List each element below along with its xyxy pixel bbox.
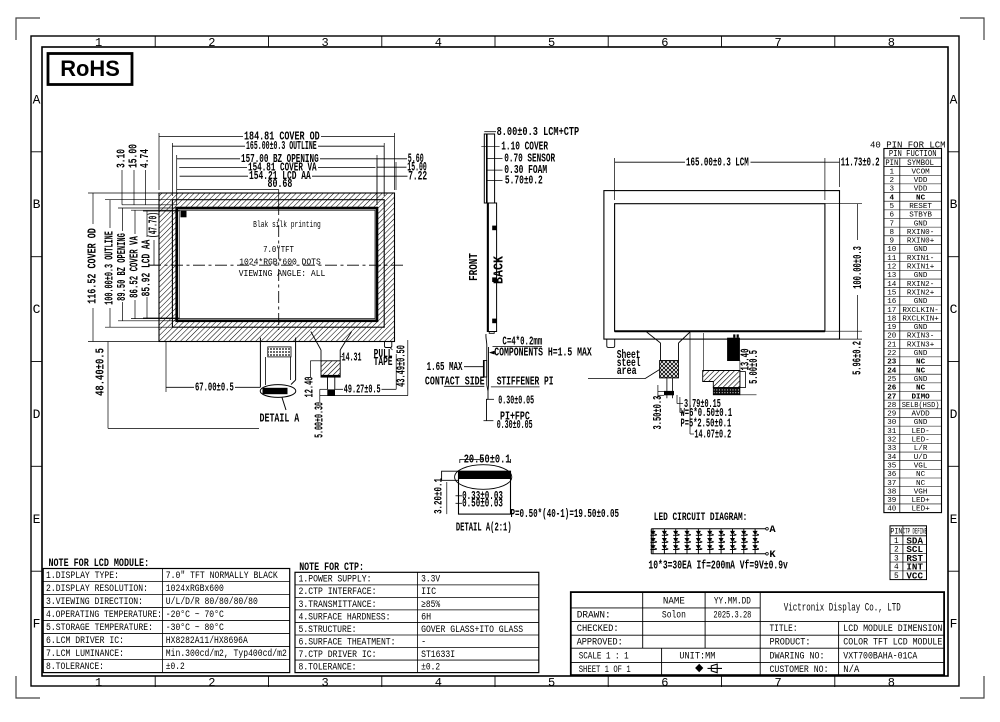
svg-text:5.STORAGE TEMPERATURE:: 5.STORAGE TEMPERATURE:	[46, 623, 153, 634]
svg-text:IIC: IIC	[421, 587, 436, 598]
svg-text:LED+: LED+	[911, 497, 930, 505]
svg-text:YY.MM.DD: YY.MM.DD	[714, 597, 751, 608]
svg-text:E: E	[950, 512, 958, 527]
svg-text:8.TOLERANCE:: 8.TOLERANCE:	[46, 662, 104, 673]
svg-text:-30°C ~ 80°C: -30°C ~ 80°C	[166, 622, 224, 634]
svg-text:VDD: VDD	[914, 186, 928, 194]
svg-text:±0.2: ±0.2	[421, 662, 440, 673]
svg-text:RXIN1-: RXIN1-	[907, 255, 934, 263]
svg-text:1: 1	[890, 168, 895, 176]
svg-text:P=0.50*(40-1)=19.50±0.05: P=0.50*(40-1)=19.50±0.05	[511, 508, 620, 521]
svg-text:VCOM: VCOM	[911, 168, 930, 176]
svg-text:U/L/D/R 80/80/80/80: U/L/D/R 80/80/80/80	[166, 596, 258, 608]
svg-text:DETAIL A: DETAIL A	[260, 412, 300, 426]
svg-text:165.00±0.3 LCM: 165.00±0.3 LCM	[686, 157, 749, 170]
svg-text:8: 8	[888, 676, 895, 690]
svg-text:16: 16	[887, 298, 897, 306]
svg-text:7: 7	[890, 220, 895, 228]
svg-text:C: C	[33, 302, 41, 317]
svg-text:2: 2	[208, 36, 215, 50]
svg-text:24: 24	[887, 367, 897, 375]
svg-text:7.22: 7.22	[408, 170, 427, 185]
svg-text:3.20±0.1: 3.20±0.1	[432, 478, 445, 514]
svg-text:-20°C ~ 70°C: -20°C ~ 70°C	[166, 609, 224, 621]
svg-text:22: 22	[887, 350, 897, 358]
svg-text:E: E	[33, 512, 41, 527]
svg-text:3: 3	[890, 186, 895, 194]
svg-text:APPROVED:: APPROVED:	[577, 638, 623, 649]
svg-text:23: 23	[887, 359, 897, 367]
svg-text:LED-: LED-	[911, 437, 929, 445]
svg-text:7.0"TFT: 7.0"TFT	[263, 244, 294, 255]
svg-text:7.0" TFT NORMALLY BLACK: 7.0" TFT NORMALLY BLACK	[166, 570, 279, 582]
svg-text:SCALE 1 : 1: SCALE 1 : 1	[579, 651, 629, 662]
svg-text:Blak silk printing: Blak silk printing	[253, 221, 321, 230]
svg-text:7: 7	[774, 676, 781, 690]
svg-text:LED-: LED-	[911, 428, 929, 436]
svg-text:6H: 6H	[421, 612, 431, 623]
svg-text:A: A	[950, 92, 958, 107]
svg-text:6: 6	[890, 212, 895, 220]
svg-text:3.VIEWING DIRECTION:: 3.VIEWING DIRECTION:	[46, 597, 143, 608]
svg-text:49.27±0.5: 49.27±0.5	[344, 382, 381, 396]
svg-text:GND: GND	[914, 350, 928, 358]
svg-text:3.TRANSMITTANCE:: 3.TRANSMITTANCE:	[299, 600, 377, 611]
svg-text:25: 25	[887, 376, 897, 384]
svg-text:1024*RGB*600 DOTS: 1024*RGB*600 DOTS	[239, 257, 321, 268]
svg-text:28: 28	[887, 402, 897, 410]
svg-text:5: 5	[894, 573, 899, 581]
svg-text:NOTE FOR LCD MODULE:: NOTE FOR LCD MODULE:	[49, 557, 150, 569]
svg-text:19: 19	[887, 324, 897, 332]
svg-text:L/R: L/R	[914, 445, 928, 453]
svg-text:SELB(HSD): SELB(HSD)	[902, 402, 940, 410]
svg-text:10: 10	[887, 246, 897, 254]
svg-text:21: 21	[887, 341, 897, 349]
svg-text:4: 4	[435, 676, 442, 690]
svg-text:4: 4	[894, 564, 899, 572]
svg-text:8: 8	[890, 229, 895, 237]
svg-text:67.00±0.5: 67.00±0.5	[195, 382, 234, 395]
svg-text:GND: GND	[914, 220, 928, 228]
svg-text:27: 27	[887, 393, 897, 401]
svg-text:≥85%: ≥85%	[421, 600, 441, 611]
svg-text:10*3=30EA If=200mA Vf=9V±0.9v: 10*3=30EA If=200mA Vf=9V±0.9v	[648, 559, 787, 573]
svg-text:12.40: 12.40	[303, 377, 317, 398]
svg-text:48.40±0.5: 48.40±0.5	[94, 348, 108, 396]
svg-text:N/A: N/A	[843, 664, 860, 676]
svg-text:±0.2: ±0.2	[166, 662, 185, 673]
svg-text:LED CIRCUIT DIAGRAM:: LED CIRCUIT DIAGRAM:	[654, 511, 748, 524]
svg-text:C: C	[950, 302, 958, 317]
svg-text:NOTE FOR CTP:: NOTE FOR CTP:	[299, 561, 364, 573]
svg-text:A: A	[33, 92, 41, 107]
svg-text:20: 20	[887, 333, 897, 341]
svg-text:14.31: 14.31	[342, 350, 362, 364]
svg-text:2: 2	[208, 676, 215, 690]
svg-text:K: K	[769, 549, 776, 561]
svg-text:5: 5	[548, 676, 555, 690]
svg-text:5.00±0.30: 5.00±0.30	[312, 402, 326, 438]
svg-text:1.POWER SUPPLY:: 1.POWER SUPPLY:	[299, 575, 372, 586]
svg-text:4: 4	[435, 36, 442, 50]
svg-text:TITLE:: TITLE:	[770, 624, 798, 635]
svg-text:5.00±0.5: 5.00±0.5	[747, 350, 760, 384]
svg-text:8: 8	[888, 36, 895, 50]
svg-text:5: 5	[890, 203, 895, 211]
svg-text:5.70±0.2: 5.70±0.2	[505, 174, 543, 188]
svg-text:8.TOLERANCE:: 8.TOLERANCE:	[299, 662, 357, 673]
svg-text:14: 14	[887, 281, 897, 289]
svg-text:6: 6	[661, 676, 668, 690]
svg-text:3.3V: 3.3V	[421, 575, 441, 586]
svg-text:VGL: VGL	[914, 462, 928, 470]
svg-text:4.SURFACE HARDNESS:: 4.SURFACE HARDNESS:	[299, 612, 391, 623]
svg-text:4.OPERATING TEMPERATURE:: 4.OPERATING TEMPERATURE:	[46, 610, 162, 621]
svg-text:14.07±0.2: 14.07±0.2	[694, 427, 731, 441]
svg-text:38: 38	[887, 488, 897, 496]
svg-text:37: 37	[887, 480, 896, 488]
svg-text:NC: NC	[916, 194, 926, 202]
svg-text:Victronix Display Co., LTD: Victronix Display Co., LTD	[784, 603, 901, 615]
svg-text:AVDD: AVDD	[911, 411, 930, 419]
svg-text:F: F	[33, 617, 41, 632]
svg-text:DWARING NO:: DWARING NO:	[770, 651, 825, 662]
svg-text:0.50±0.03: 0.50±0.03	[462, 497, 503, 510]
svg-text:0.30±0.05: 0.30±0.05	[498, 393, 534, 407]
svg-text:TAPE: TAPE	[374, 356, 393, 370]
svg-text:LED+: LED+	[911, 506, 930, 514]
svg-text:9: 9	[890, 238, 895, 246]
svg-text:STBYB: STBYB	[909, 212, 932, 220]
svg-text:3.50±0.3: 3.50±0.3	[651, 396, 664, 430]
svg-text:GND: GND	[914, 272, 928, 280]
svg-text:100.00±0.3: 100.00±0.3	[851, 246, 864, 289]
svg-text:D: D	[950, 407, 958, 422]
svg-text:NC: NC	[916, 367, 926, 375]
svg-text:4: 4	[890, 194, 895, 202]
svg-text:NC: NC	[916, 359, 926, 367]
svg-text:8.00±0.3 LCM+CTP: 8.00±0.3 LCM+CTP	[497, 126, 580, 140]
svg-text:GND: GND	[914, 246, 928, 254]
svg-text:1: 1	[95, 36, 102, 50]
svg-text:CHECKED:: CHECKED:	[577, 624, 619, 635]
svg-text:2: 2	[890, 177, 895, 185]
svg-text:NC: NC	[916, 480, 926, 488]
svg-text:PRODUCT:: PRODUCT:	[770, 638, 811, 649]
svg-text:D: D	[33, 407, 41, 422]
svg-text:18: 18	[887, 315, 897, 323]
svg-text:area: area	[617, 366, 637, 379]
svg-text:2.DISPLAY RESOLUTION:: 2.DISPLAY RESOLUTION:	[46, 584, 148, 595]
svg-text:29: 29	[887, 411, 897, 419]
svg-text:100.00±0.3 OUTLINE: 100.00±0.3 OUTLINE	[103, 231, 117, 305]
svg-text:116.52 COVER OD: 116.52 COVER OD	[86, 228, 100, 304]
svg-text:1: 1	[894, 538, 899, 546]
svg-text:11: 11	[887, 255, 897, 263]
svg-text:12: 12	[887, 264, 897, 272]
svg-text:30: 30	[887, 419, 897, 427]
svg-text:F: F	[950, 617, 958, 632]
svg-text:31: 31	[887, 428, 897, 436]
svg-text:2.CTP INTERFACE:: 2.CTP INTERFACE:	[299, 587, 377, 598]
svg-text:0.30±0.05: 0.30±0.05	[497, 418, 533, 432]
svg-text:3: 3	[894, 555, 899, 563]
svg-text:NC: NC	[916, 471, 926, 479]
svg-text:GND: GND	[914, 298, 928, 306]
svg-text:11.73±0.2: 11.73±0.2	[841, 157, 880, 170]
svg-text:VXT700BAHA-01CA: VXT700BAHA-01CA	[843, 651, 918, 662]
svg-text:VGH: VGH	[914, 488, 928, 496]
svg-text:7: 7	[774, 36, 781, 50]
svg-text:32: 32	[887, 437, 897, 445]
svg-text:43.49±0.50: 43.49±0.50	[395, 345, 409, 387]
svg-text:RXIN0+: RXIN0+	[907, 238, 935, 246]
svg-text:DRAWN:: DRAWN:	[577, 611, 611, 622]
svg-text:1024xRGBx600: 1024xRGBx600	[166, 584, 224, 595]
svg-text:33: 33	[887, 445, 897, 453]
svg-text:VCC: VCC	[906, 570, 923, 581]
svg-text:B: B	[33, 197, 41, 212]
svg-text:FRONT: FRONT	[468, 253, 481, 281]
svg-text:Solon: Solon	[662, 610, 686, 622]
svg-text:B: B	[950, 197, 958, 212]
svg-text:VIEWING ANGLE: ALL: VIEWING ANGLE: ALL	[239, 269, 326, 280]
svg-text:26: 26	[887, 385, 897, 393]
svg-text:U/D: U/D	[914, 454, 928, 462]
svg-text:LCD MODULE DIMENSION: LCD MODULE DIMENSION	[843, 624, 942, 635]
svg-text:CONTACT SIDE: CONTACT SIDE	[425, 375, 485, 389]
svg-text:35: 35	[887, 462, 897, 470]
svg-text:HX8282A11/HX8696A: HX8282A11/HX8696A	[166, 635, 249, 647]
svg-text:BACK: BACK	[491, 256, 507, 284]
svg-text:2: 2	[894, 547, 899, 555]
svg-text:RXIN1+: RXIN1+	[907, 264, 935, 272]
svg-text:3: 3	[321, 36, 328, 50]
svg-text:2025.3.28: 2025.3.28	[713, 611, 751, 622]
svg-text:RoHS: RoHS	[60, 56, 120, 81]
svg-text:GND: GND	[914, 376, 928, 384]
svg-text:7.CTP DRIVER IC:: 7.CTP DRIVER IC:	[299, 650, 377, 661]
svg-text:COLOR TFT LCD MODULE: COLOR TFT LCD MODULE	[843, 638, 942, 649]
svg-text:36: 36	[887, 471, 897, 479]
svg-text:GND: GND	[914, 324, 928, 332]
svg-text:6.LCM DRIVER IC:: 6.LCM DRIVER IC:	[46, 636, 124, 647]
svg-text:89.50 BZ OPENING: 89.50 BZ OPENING	[115, 233, 128, 301]
svg-text:COMPONENTS H=1.5 MAX: COMPONENTS H=1.5 MAX	[494, 346, 592, 360]
svg-text:RESET: RESET	[909, 203, 932, 211]
svg-text:A: A	[769, 524, 776, 536]
svg-text:4.74: 4.74	[139, 149, 153, 168]
svg-text:DIMO: DIMO	[911, 393, 930, 401]
svg-text:40: 40	[887, 506, 897, 514]
svg-text:39: 39	[887, 497, 897, 505]
svg-text:5.96±0.2: 5.96±0.2	[851, 341, 864, 375]
svg-text:6.SURFACE THEATMENT:: 6.SURFACE THEATMENT:	[299, 637, 396, 648]
svg-text:13: 13	[887, 272, 897, 280]
svg-text:1.65 MAX: 1.65 MAX	[427, 362, 464, 375]
svg-text:5: 5	[548, 36, 555, 50]
svg-text:RXIN3+: RXIN3+	[907, 341, 935, 349]
svg-text:7.LCM LUMINANCE:: 7.LCM LUMINANCE:	[46, 649, 124, 660]
svg-text:Min.300cd/m2, Typ400cd/m2: Min.300cd/m2, Typ400cd/m2	[166, 648, 287, 660]
svg-text:1.DISPLAY TYPE:: 1.DISPLAY TYPE:	[46, 571, 119, 582]
svg-text:RXIN3-: RXIN3-	[907, 333, 934, 341]
svg-text:RXCLKIN-: RXCLKIN-	[902, 307, 938, 315]
svg-text:3: 3	[321, 676, 328, 690]
svg-text:UNIT:MM: UNIT:MM	[679, 651, 715, 662]
svg-text:-: -	[421, 637, 426, 648]
svg-text:17: 17	[887, 307, 896, 315]
svg-text:RXIN0-: RXIN0-	[907, 229, 934, 237]
svg-text:15: 15	[887, 289, 897, 297]
svg-text:6: 6	[661, 36, 668, 50]
svg-text:1.10 COVER: 1.10 COVER	[501, 140, 548, 154]
svg-text:CUSTOMER NO:: CUSTOMER NO:	[770, 665, 829, 676]
svg-text:NC: NC	[916, 385, 926, 393]
svg-text:SHEET 1 OF 1: SHEET 1 OF 1	[579, 665, 631, 676]
svg-text:GOVER GLASS+ITO GLASS: GOVER GLASS+ITO GLASS	[421, 625, 523, 636]
svg-text:DETAIL A(2:1): DETAIL A(2:1)	[456, 521, 512, 534]
svg-text:34: 34	[887, 454, 897, 462]
svg-text:165.00±0.3 OUTLINE: 165.00±0.3 OUTLINE	[246, 139, 317, 153]
svg-text:ST1633I: ST1633I	[421, 650, 455, 661]
svg-text:RXIN2-: RXIN2-	[907, 281, 934, 289]
svg-text:VDD: VDD	[914, 177, 928, 185]
svg-text:NAME: NAME	[663, 597, 685, 608]
svg-text:1: 1	[95, 676, 102, 690]
svg-text:(47.70): (47.70)	[146, 212, 160, 238]
svg-text:RXCLKIN+: RXCLKIN+	[902, 315, 939, 323]
svg-text:RXIN2+: RXIN2+	[907, 289, 935, 297]
svg-text:85.92 LCD AA: 85.92 LCD AA	[140, 239, 154, 296]
svg-text:5.STRUCTURE:: 5.STRUCTURE:	[299, 625, 357, 636]
svg-text:GND: GND	[914, 419, 928, 427]
